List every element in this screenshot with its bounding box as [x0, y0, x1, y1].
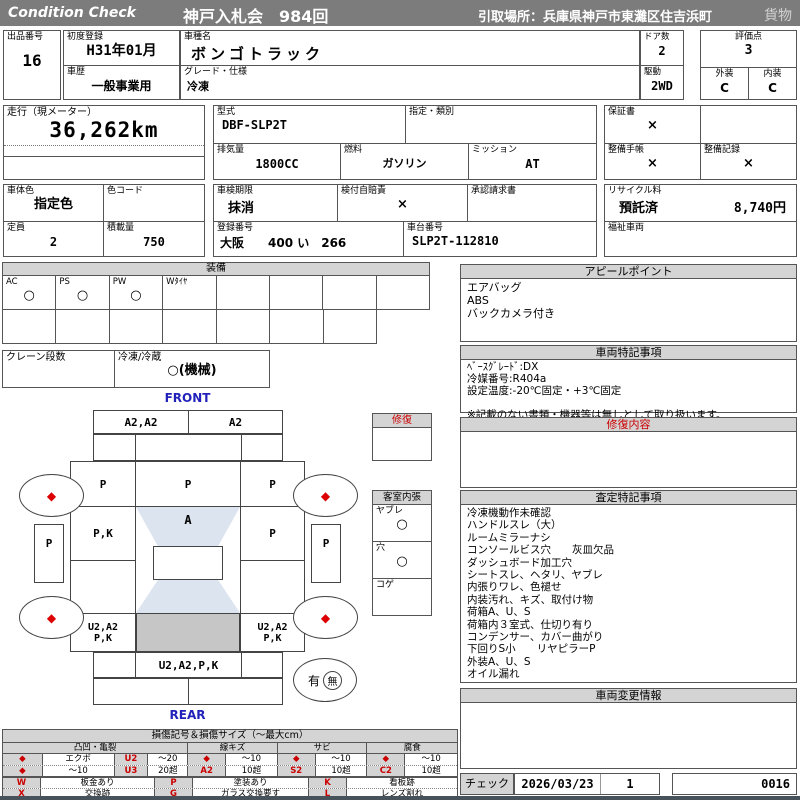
check-label: チェック [460, 773, 514, 795]
assessment-line: 下回りS小 リヤピラーP [467, 643, 790, 655]
check-date-box: 2026/03/23 1 [514, 773, 660, 795]
assessment-line: コンソールビス穴 灰皿欠品 [467, 544, 790, 556]
equipment-mark: ○ [110, 288, 162, 303]
color-capacity-box: 車体色 指定色 色コード 定員 2 積載量 750 [3, 184, 205, 257]
legend-size: ～10 [226, 754, 278, 765]
rear-corner-left [93, 652, 136, 678]
lot-number-label: 出品番号 [4, 31, 60, 43]
change-info-panel: 車両変更情報 [460, 688, 797, 769]
wheel-front-right: ◆ [293, 474, 358, 517]
appeal-line: バックカメラ付き [467, 307, 790, 320]
legend-symbol: ◆ [367, 754, 405, 765]
recycle-status: 預託済 [619, 197, 658, 216]
legend-text: ～10 [43, 766, 115, 776]
wheel-front-left: ◆ [19, 474, 84, 517]
repair-mini-title: 修復 [373, 414, 431, 428]
damage-diamond-icon: ◆ [47, 612, 56, 624]
repair-history-no-circled: 無 [323, 671, 342, 690]
legend-symbol: ◆ [3, 754, 43, 765]
brand-logo: Condition Check [8, 5, 136, 21]
recycle-label: リサイクル料 [605, 185, 796, 197]
reg-number-label: 登録番号 [214, 222, 403, 234]
legend-group-row: 凸凹・亀裂 線キズ サビ 腐食 [3, 743, 457, 754]
recycle-fee: 8,740円 [734, 197, 786, 216]
color-code-label: 色コード [104, 185, 204, 197]
service-record-label: 整備記録 [701, 144, 796, 156]
transmission-value: AT [469, 156, 596, 172]
score-label: 評価点 [701, 31, 796, 43]
fuel-value: ガソリン [341, 156, 468, 172]
model-code-value: DBF-SLP2T [214, 118, 405, 132]
insurance-value: × [338, 197, 467, 213]
rear-bumper-left [93, 678, 189, 705]
welfare-label: 福祉車両 [605, 222, 796, 234]
equipment-mark: ○ [56, 288, 108, 303]
rating-box: 評価点 3 外装 C 内装 C [700, 30, 797, 100]
registration-box: 初度登録 H31年01月 車歴 一般事業用 [63, 30, 180, 100]
legend-size: 10超 [405, 766, 457, 776]
damage-diamond-icon: ◆ [47, 490, 56, 502]
cab-center-box [153, 546, 223, 580]
appeal-line: ABS [467, 294, 790, 307]
legend-code: S2 [278, 766, 316, 776]
cargo-right-line2: P,K [263, 633, 281, 644]
equipment-header: 装備 [2, 262, 430, 276]
inspection-value: 抹消 [214, 197, 337, 216]
body-color-label: 車体色 [4, 185, 103, 197]
designation-label: 指定・類別 [406, 106, 596, 118]
chassis-number-label: 車台番号 [404, 222, 596, 234]
equipment-label: PW [110, 276, 162, 288]
cabin-item-mark: ○ [373, 517, 431, 532]
rear-window-shade [136, 580, 240, 613]
bottom-edge-bar [0, 796, 800, 800]
rear-bumper-right [188, 678, 283, 705]
legend-size: 20超 [148, 766, 188, 776]
equipment-row-2 [2, 310, 377, 344]
legend-row-2: ◆ ～10 U3 20超 A2 10超 S2 10超 C2 10超 [3, 765, 457, 776]
assessment-line: 内張りワレ、色褪せ [467, 581, 790, 593]
legend-code-label: 看板跡 [347, 778, 457, 788]
cargo-right-line1: U2,A2 [257, 622, 287, 633]
legend-size: 10超 [316, 766, 368, 776]
legend-code: A2 [188, 766, 226, 776]
front-panel-left-mark: A2,A2 [93, 410, 189, 434]
mirror-left-mark: P [34, 524, 64, 583]
displacement-label: 排気量 [214, 144, 340, 156]
legend-code: C2 [367, 766, 405, 776]
assessment-line: 外装A、U、S [467, 656, 790, 668]
mileage-box: 走行（現メーター） 36,262km [3, 105, 205, 180]
check-count: 1 [601, 774, 659, 794]
assessment-line: 冷凍機動作未確認 [467, 507, 790, 519]
repair-history-indicator: 有 無 [293, 658, 357, 702]
equipment-label: Wﾀｲﾔ [163, 276, 215, 288]
grade-label: グレード・仕様 [181, 66, 639, 78]
assessment-line: ハンドルスレ（大） [467, 519, 790, 531]
crane-reefer-box: クレーン段数 冷凍/冷蔵 ○(機械) [2, 350, 270, 388]
legend-code-label: 板金あり [41, 778, 155, 788]
legend-size: ～10 [316, 754, 368, 765]
rear-panel-mark: U2,A2,P,K [135, 652, 242, 678]
service-record-value: × [701, 156, 796, 172]
history-value: 一般事業用 [64, 78, 179, 94]
condition-check-sheet: Condition Check 神戸入札会 984回 引取場所：兵庫県神戸市東灘… [0, 0, 800, 800]
legend-group: 凸凹・亀裂 [3, 743, 188, 753]
appeal-line: エアバッグ [467, 281, 790, 294]
equipment-mark: ○ [3, 288, 55, 303]
fuel-label: 燃料 [341, 144, 468, 156]
mileage-value: 36,262km [4, 118, 204, 142]
cabin-item-label: コゲ [373, 579, 431, 591]
side-lower-left [70, 560, 136, 614]
legend-size: 10超 [226, 766, 278, 776]
equipment-row-1: AC○ PS○ PW○ Wﾀｲﾔ [2, 276, 430, 310]
reg-number-value: 大阪 400 い 266 [214, 234, 403, 251]
cabin-item-mark: ○ [373, 554, 431, 569]
change-info-title: 車両変更情報 [461, 689, 796, 703]
body-color-value: 指定色 [4, 197, 103, 213]
score-value: 3 [701, 43, 796, 59]
legend-code: K [309, 778, 347, 788]
check-date: 2026/03/23 [515, 774, 601, 794]
legend-group: 腐食 [367, 743, 457, 753]
legend-symbol: ◆ [3, 766, 43, 776]
vehicle-note-line: 設定温度:-20℃固定・+3℃固定 [467, 385, 790, 397]
side-lower-right [240, 560, 305, 614]
spec-box: 型式 DBF-SLP2T 指定・類別 排気量 1800CC 燃料 ガソリン ミッ… [213, 105, 597, 180]
legend-code: U3 [115, 766, 149, 776]
cargo-left-line2: P,K [94, 633, 112, 644]
assessment-line: ルームミラーナシ [467, 532, 790, 544]
doors-value: 2 [641, 43, 683, 59]
drive-label: 駆動 [641, 66, 683, 78]
cabin-item-label: 穴 [373, 542, 431, 554]
reefer-label: 冷凍/冷蔵 [115, 351, 269, 363]
code-row-1: W 板金あり P 塗装あり K 看板跡 [3, 778, 457, 789]
door-left-mark: P,K [70, 506, 136, 561]
vehicle-note-line: ﾍﾞｰｽｸﾞﾚｰﾄﾞ:DX [467, 361, 790, 373]
transmission-label: ミッション [469, 144, 596, 156]
approval-label: 承認請求書 [468, 185, 596, 197]
grade-value: 冷凍 [181, 78, 639, 94]
legend-text: エクボ [43, 754, 115, 765]
chassis-number-value: SLP2T-112810 [404, 234, 596, 248]
rear-corner-right [241, 652, 283, 678]
mirror-right-mark: P [311, 524, 341, 583]
assessment-line: 荷箱内３室式、仕切り有り [467, 619, 790, 631]
model-name-label: 車種名 [181, 31, 639, 43]
damage-diamond-icon: ◆ [321, 490, 330, 502]
cargo-floor-shade [136, 613, 240, 652]
vehicle-note-line: 冷媒番号:R404a [467, 373, 790, 385]
cabin-lining-box: 客室内張 ヤブレ ○ 穴 ○ コゲ [372, 490, 432, 616]
assessment-notes-title: 査定特記事項 [461, 491, 796, 505]
service-book-value: × [605, 156, 700, 172]
drive-value: 2WD [641, 78, 683, 94]
repair-content-title: 修復内容 [461, 418, 796, 432]
lot-number-value: 16 [4, 53, 60, 69]
wheel-rear-right: ◆ [293, 596, 358, 639]
warranty-value: × [605, 118, 700, 134]
lot-number-box: 出品番号 16 [3, 30, 61, 100]
interior-grade: C [749, 80, 796, 96]
repair-mini-box: 修復 [372, 413, 432, 461]
repair-content-panel: 修復内容 [460, 417, 797, 488]
assessment-notes-panel: 査定特記事項 冷凍機動作未確認 ハンドルスレ（大） ルームミラーナシ コンソール… [460, 490, 797, 683]
inspection-label: 車検期限 [214, 185, 337, 197]
front-label: FRONT [110, 391, 265, 405]
vehicle-note-line [467, 397, 790, 409]
assessment-line: 内装汚れ、キズ、取付け物 [467, 594, 790, 606]
insurance-label: 検付自賠責 [338, 185, 467, 197]
legend-code: W [3, 778, 41, 788]
exterior-label: 外装 [701, 68, 748, 80]
legend-code: U2 [115, 754, 149, 765]
vehicle-notes-title: 車両特記事項 [461, 346, 796, 360]
capacity-label: 定員 [4, 222, 103, 234]
title-bar: Condition Check 神戸入札会 984回 引取場所：兵庫県神戸市東灘… [0, 0, 800, 26]
windshield-center-mark: A [136, 507, 240, 546]
assessment-line: ダッシュボード加工穴 [467, 557, 790, 569]
mileage-label: 走行（現メーター） [4, 106, 204, 118]
damage-diamond-icon: ◆ [321, 612, 330, 624]
history-label: 車歴 [64, 66, 179, 78]
appeal-points-panel: アピールポイント エアバッグ ABS バックカメラ付き [460, 264, 797, 342]
doors-drive-box: ドア数 2 駆動 2WD [640, 30, 684, 100]
cabin-lining-title: 客室内張 [373, 491, 431, 505]
model-name-value: ボンゴトラック [181, 43, 639, 64]
legend-symbol: ◆ [188, 754, 226, 765]
cargo-left-line1: U2,A2 [88, 622, 118, 633]
door-right-mark: P [240, 506, 305, 561]
legend-size: ～10 [405, 754, 457, 765]
legend-group: 線キズ [188, 743, 278, 753]
model-box: 車種名 ボンゴトラック グレード・仕様 冷凍 [180, 30, 640, 100]
wheel-rear-left: ◆ [19, 596, 84, 639]
reefer-value: ○(機械) [115, 363, 269, 379]
assessment-line: コンデンサー、カバー曲がり [467, 631, 790, 643]
appeal-points-title: アピールポイント [461, 265, 796, 279]
assessment-line: シートスレ、ヘタリ、ヤブレ [467, 569, 790, 581]
equipment-label: AC [3, 276, 55, 288]
exterior-grade: C [701, 80, 748, 96]
first-registration-label: 初度登録 [64, 31, 179, 43]
legend-code: P [155, 778, 193, 788]
category-badge: 貨物 [764, 5, 792, 25]
displacement-value: 1800CC [214, 156, 340, 172]
windshield-top-center [135, 434, 242, 461]
cabin-item-label: ヤブレ [373, 505, 431, 517]
warranty-label: 保証書 [605, 106, 700, 118]
windshield-corner-right [241, 434, 283, 461]
pickup-location: 引取場所：兵庫県神戸市東灘区住吉浜町 [478, 6, 712, 25]
legend-size: ～20 [148, 754, 188, 765]
legend-title: 損傷記号＆損傷サイズ（～最大cm） [3, 730, 457, 743]
doors-label: ドア数 [641, 31, 683, 43]
assessment-line: 荷箱A、U、S [467, 606, 790, 618]
assessment-line: オイル漏れ [467, 668, 790, 680]
windshield-corner-left [93, 434, 136, 461]
front-panel-right-mark: A2 [188, 410, 283, 434]
legend-code-label: 塗装あり [193, 778, 309, 788]
load-label: 積載量 [104, 222, 204, 234]
load-value: 750 [104, 234, 204, 250]
legend-symbol: ◆ [278, 754, 316, 765]
sheet-number: 0016 [672, 773, 797, 795]
legend-row-1: ◆ エクボ U2 ～20 ◆ ～10 ◆ ～10 ◆ ～10 [3, 754, 457, 765]
vehicle-notes-panel: 車両特記事項 ﾍﾞｰｽｸﾞﾚｰﾄﾞ:DX 冷媒番号:R404a 設定温度:-20… [460, 345, 797, 413]
equipment-label: PS [56, 276, 108, 288]
inspection-box: 車検期限 抹消 検付自賠責 × 承認請求書 登録番号 大阪 400 い 266 … [213, 184, 597, 257]
roof-center-mark: P [135, 461, 241, 507]
capacity-value: 2 [4, 234, 103, 250]
damage-legend: 損傷記号＆損傷サイズ（～最大cm） 凸凹・亀裂 線キズ サビ 腐食 ◆ エクボ … [2, 729, 458, 777]
documents-box: 保証書 × 整備手帳 × 整備記録 × [604, 105, 797, 180]
model-code-label: 型式 [214, 106, 405, 118]
auction-title: 神戸入札会 984回 [183, 3, 328, 27]
crane-label: クレーン段数 [3, 351, 114, 363]
repair-history-yes: 有 [308, 672, 320, 689]
recycle-box: リサイクル料 預託済 8,740円 福祉車両 [604, 184, 797, 257]
first-registration-value: H31年01月 [64, 43, 179, 59]
legend-group: サビ [278, 743, 368, 753]
service-book-label: 整備手帳 [605, 144, 700, 156]
interior-label: 内装 [749, 68, 796, 80]
rear-label: REAR [110, 708, 265, 722]
